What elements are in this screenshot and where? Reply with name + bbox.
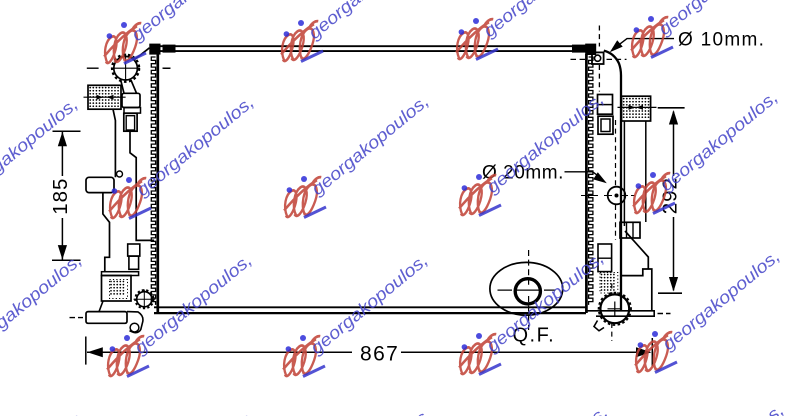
svg-text:185: 185 xyxy=(49,178,72,215)
svg-text:867: 867 xyxy=(360,342,399,365)
svg-text:Ø 10mm.: Ø 10mm. xyxy=(678,29,765,50)
